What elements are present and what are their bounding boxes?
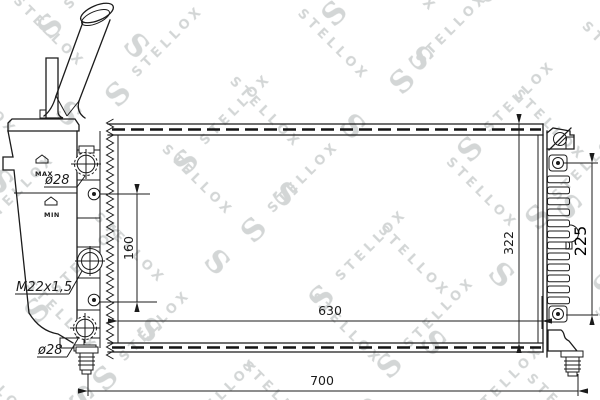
lower-reference-pin <box>88 294 100 306</box>
upper-reference-pin <box>88 188 100 200</box>
dimension-225-value: 225 <box>571 226 590 257</box>
dimension-700-value: 700 <box>310 373 334 388</box>
min-level-label: MIN <box>44 211 60 219</box>
dimension-322-value: 322 <box>501 231 516 255</box>
right-tank-lower-bolt-boss <box>549 306 567 322</box>
catalog-drawing-canvas: S STELLOX S STELLOX <box>0 0 600 400</box>
dimension-160-value: 160 <box>121 236 136 260</box>
radiator-technical-drawing: S STELLOX S STELLOX <box>0 0 600 400</box>
lower-port-diameter-label: ø28 <box>37 343 63 358</box>
upper-port-diameter-label: ø28 <box>44 173 70 188</box>
watermark-layer-diagonal-down <box>0 0 600 400</box>
dimension-630-value: 630 <box>318 303 342 318</box>
thread-spec-label: M22x1,5 <box>16 280 72 295</box>
